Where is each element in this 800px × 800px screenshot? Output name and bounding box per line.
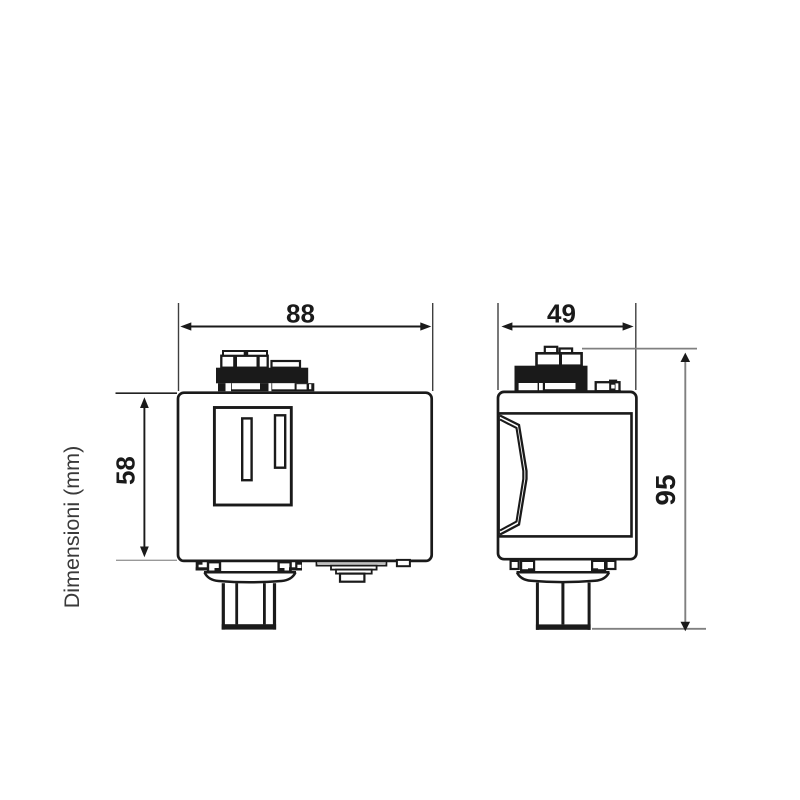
- svg-text:88: 88: [286, 299, 315, 329]
- svg-text:95: 95: [650, 474, 681, 505]
- svg-text:58: 58: [111, 456, 141, 485]
- svg-text:49: 49: [547, 299, 576, 329]
- svg-text:Dimensioni (mm): Dimensioni (mm): [60, 446, 84, 608]
